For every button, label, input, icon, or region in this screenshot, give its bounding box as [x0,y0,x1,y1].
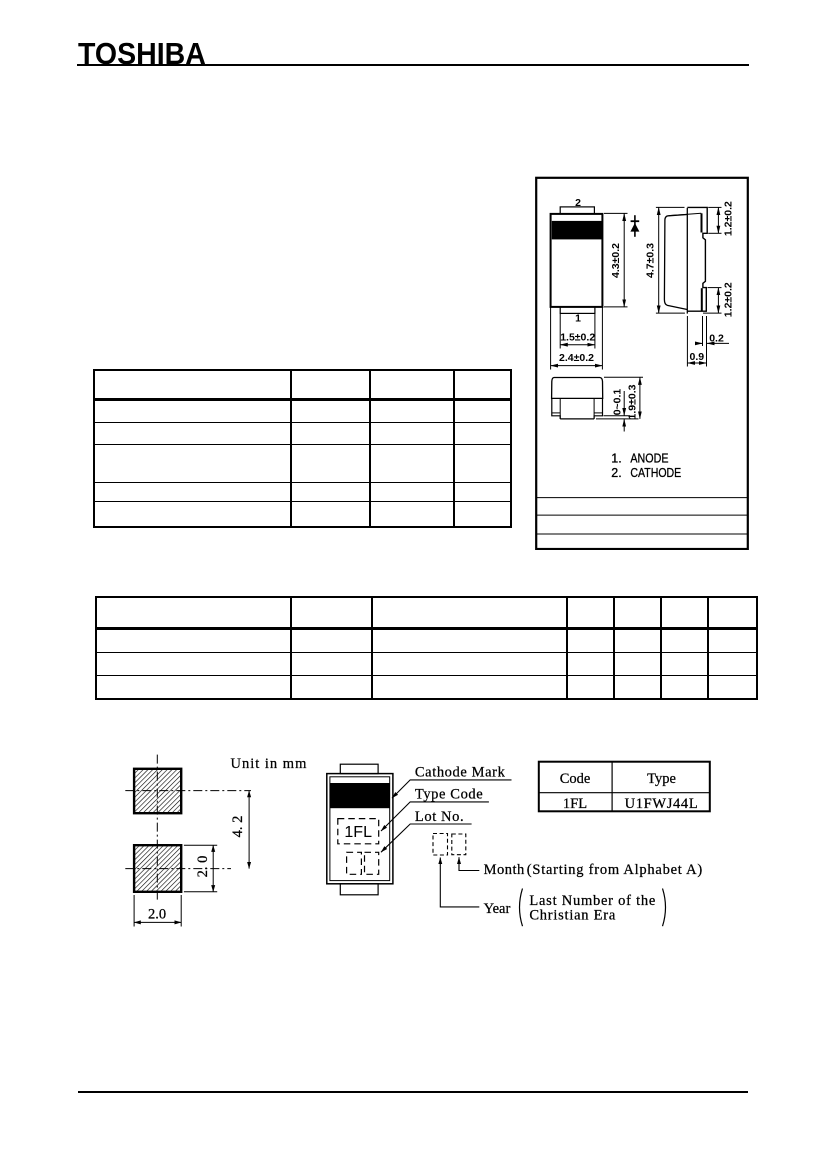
svg-text:(Starting from Alphabet A): (Starting from Alphabet A) [527,862,703,878]
svg-text:1FL: 1FL [344,824,372,841]
svg-text:0~0.1: 0~0.1 [611,389,623,416]
svg-text:1.: 1. [611,452,621,466]
svg-text:1.2±0.2: 1.2±0.2 [723,282,735,317]
svg-text:Unit in mm: Unit in mm [231,756,308,772]
svg-text:0.9: 0.9 [689,351,704,363]
svg-text:4.7±0.3: 4.7±0.3 [645,243,657,278]
svg-text:Cathode Mark: Cathode Mark [415,764,506,780]
svg-text:0.2: 0.2 [709,332,724,344]
svg-text:ANODE: ANODE [630,452,668,466]
svg-text:1: 1 [575,313,581,325]
svg-text:Code: Code [560,771,591,787]
svg-text:Christian Era: Christian Era [529,907,616,923]
svg-text:2. 0: 2. 0 [195,856,211,878]
svg-text:Month: Month [484,862,525,878]
svg-text:Year: Year [484,901,511,917]
svg-text:Type Code: Type Code [415,787,483,803]
svg-text:1FL: 1FL [563,796,587,812]
svg-text:1.2±0.2: 1.2±0.2 [723,201,735,236]
svg-text:1.5±0.2: 1.5±0.2 [560,331,595,343]
svg-text:U1FWJ44L: U1FWJ44L [625,796,699,812]
svg-text:2.0: 2.0 [148,907,166,923]
svg-text:1.9±0.3: 1.9±0.3 [627,384,639,419]
svg-text:2.: 2. [611,466,621,480]
svg-text:Type: Type [647,771,676,787]
svg-text:Lot No.: Lot No. [415,809,464,825]
svg-text:4.3±0.2: 4.3±0.2 [610,243,622,278]
svg-text:CATHODE: CATHODE [630,466,681,480]
svg-text:2.4±0.2: 2.4±0.2 [559,352,594,364]
svg-text:4. 2: 4. 2 [230,816,246,838]
